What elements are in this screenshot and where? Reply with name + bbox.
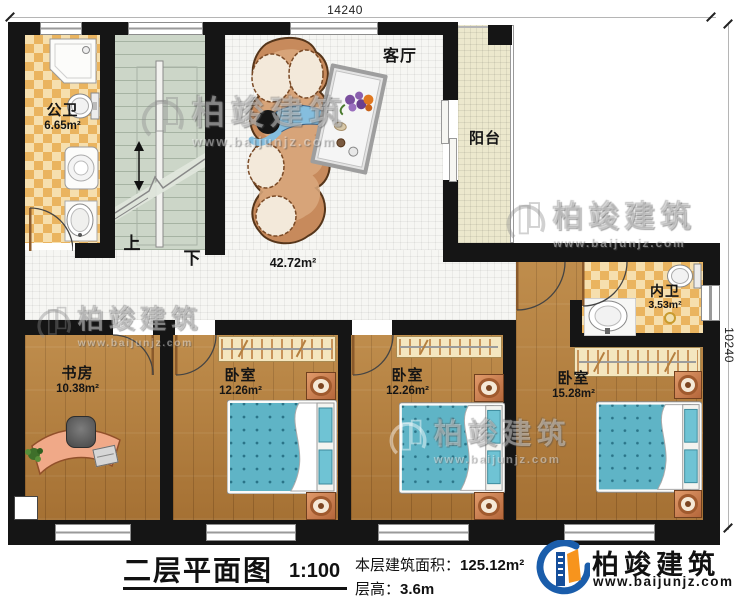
- plan-scale: 1:100: [289, 560, 340, 583]
- window: [701, 285, 720, 321]
- wall-left: [8, 22, 25, 545]
- room-label-ensuite: 内卫 3.53m²: [634, 284, 696, 311]
- wall-bedroom1-bedroom2: [338, 332, 351, 520]
- wardrobe-rail: [400, 346, 498, 348]
- room-area: 10.38m²: [35, 383, 120, 396]
- wall-corridor: [392, 320, 516, 335]
- dim-right-value: 10240: [722, 314, 736, 376]
- dim-line-top: [8, 17, 716, 18]
- room-label-bedroom1: 卧室 12.26m²: [203, 368, 278, 398]
- washing-machine: [64, 146, 100, 190]
- wall-corridor: [215, 320, 352, 335]
- lamp: [678, 494, 698, 514]
- nightstand: [674, 371, 702, 399]
- window: [206, 524, 296, 541]
- room-label-bedroom3: 卧室 15.28m²: [536, 371, 611, 401]
- wall-balcony-corner: [488, 25, 512, 45]
- room-name: 公卫: [25, 103, 100, 120]
- room-label-study: 书房 10.38m²: [35, 366, 120, 396]
- floor-area-label: 本层建筑面积：: [355, 557, 460, 574]
- lamp: [478, 378, 500, 398]
- room-label-bedroom2: 卧室 12.26m²: [370, 368, 445, 398]
- sliding-door-panel: [449, 138, 457, 182]
- wall-top: [82, 22, 128, 35]
- window: [40, 22, 82, 35]
- nightstand: [474, 374, 504, 402]
- nightstand: [674, 490, 702, 518]
- desk-chair: [66, 416, 96, 448]
- room-area: 42.72m²: [248, 256, 338, 270]
- shower-tray: [48, 37, 98, 85]
- wall-livingroom-balcony: [443, 180, 458, 248]
- lamp: [478, 496, 500, 516]
- lamp: [678, 375, 698, 395]
- nightstand: [306, 492, 336, 520]
- wall-top: [8, 22, 40, 35]
- floor-height-line: 层高：3.6m: [355, 578, 434, 599]
- room-area: 3.53m²: [634, 300, 696, 312]
- bed: [596, 399, 702, 495]
- room-area: 6.65m²: [25, 120, 100, 133]
- plan-title: 二层平面图: [123, 549, 273, 589]
- title-underline: [123, 587, 347, 590]
- bed: [399, 402, 505, 494]
- lamp: [310, 496, 332, 516]
- room-name: 卧室: [370, 368, 445, 385]
- wardrobe: [218, 336, 336, 362]
- wall-corridor: [25, 320, 113, 335]
- sliding-door-panel: [441, 100, 449, 144]
- brand-logo-icon: [536, 540, 590, 598]
- room-area: 12.26m²: [203, 385, 278, 398]
- room-label-living-area: 42.72m²: [248, 256, 338, 270]
- floorplan: 14240 10240: [0, 0, 750, 605]
- brand-url: www.baijunjz.com: [593, 574, 734, 589]
- door-bedroom3: [516, 261, 566, 311]
- lamp: [310, 376, 332, 396]
- dim-line-right: [728, 22, 729, 530]
- window: [128, 22, 203, 35]
- plant: [24, 444, 44, 464]
- stairs-up-label: 上: [118, 234, 146, 253]
- room-label-public-bath: 公卫 6.65m²: [25, 103, 100, 133]
- watermark-brand: 柏竣建筑: [553, 192, 697, 236]
- nightstand: [306, 372, 336, 400]
- room-area: 15.28m²: [536, 388, 611, 401]
- floor-area-line: 本层建筑面积：125.12m²: [355, 554, 524, 575]
- window: [55, 524, 131, 541]
- wardrobe: [396, 336, 502, 358]
- dim-top-value: 14240: [300, 3, 390, 17]
- door-ensuite: [582, 261, 628, 307]
- room-name: 书房: [35, 366, 120, 383]
- wardrobe-rail: [222, 348, 331, 350]
- room-name: 客厅: [368, 48, 432, 66]
- stairs-down-label: 下: [178, 249, 206, 268]
- room-name: 内卫: [634, 284, 696, 300]
- floor-drain: [664, 312, 676, 324]
- wall-middle-horizontal: [443, 243, 720, 262]
- wall-top: [378, 22, 458, 35]
- watermark-text: 柏竣建筑 www.baijunjz.com: [553, 192, 697, 250]
- room-name: 卧室: [203, 368, 278, 385]
- window: [564, 524, 655, 541]
- room-label-balcony: 阳台: [458, 131, 512, 148]
- wall-bath-bottom: [75, 243, 115, 258]
- wall-stairs-livingroom: [205, 22, 225, 255]
- wall-bath-stairs: [100, 35, 115, 250]
- floor-area-value: 125.12m²: [460, 557, 524, 574]
- wall-livingroom-balcony: [443, 35, 458, 100]
- staircase: [115, 35, 205, 250]
- door-public-bath: [29, 207, 73, 251]
- floor-height-label: 层高：: [355, 581, 400, 598]
- window: [378, 524, 469, 541]
- watermark: 柏竣建筑 www.baijunjz.com: [505, 192, 696, 250]
- corner-niche: [14, 496, 38, 520]
- room-name: 卧室: [536, 371, 611, 388]
- room-name: 阳台: [458, 131, 512, 148]
- room-label-living: 客厅: [368, 48, 432, 66]
- bed: [227, 400, 337, 494]
- room-area: 12.26m²: [370, 385, 445, 398]
- wall-study-bedroom1: [160, 332, 173, 520]
- floor-height-value: 3.6m: [400, 581, 434, 598]
- nightstand: [474, 492, 504, 520]
